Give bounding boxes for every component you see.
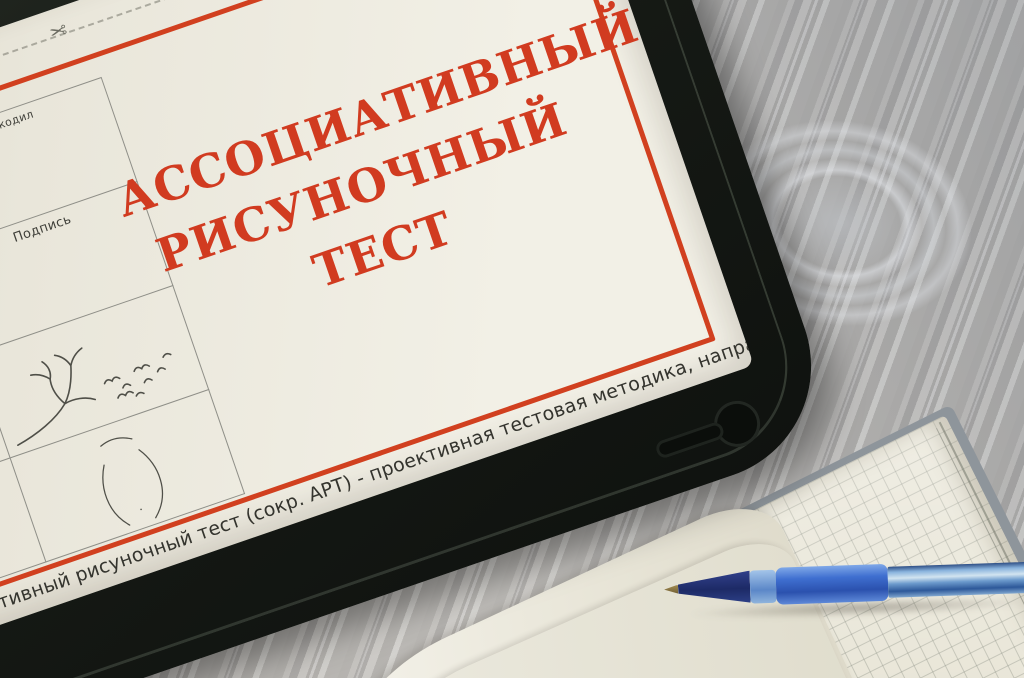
pen-cone: [678, 571, 751, 605]
photo-scene: ✂ крокодил Подпись: [0, 0, 1024, 678]
pen-collar: [749, 569, 776, 603]
pen-barrel: [887, 561, 1024, 597]
pen-grip: [775, 563, 888, 604]
pen-tip: [664, 585, 678, 594]
scissors-icon: ✂: [48, 19, 70, 44]
